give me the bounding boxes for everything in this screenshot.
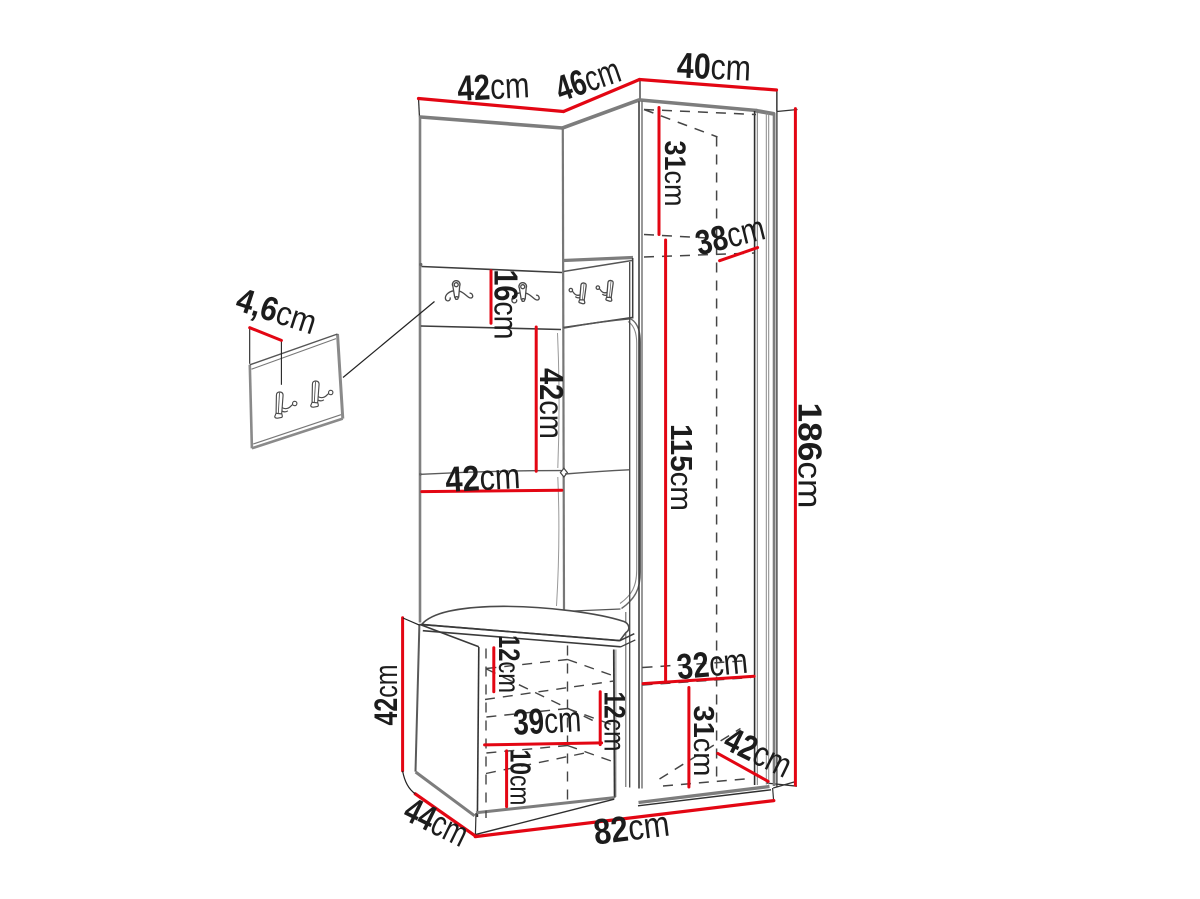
svg-text:31cm: 31cm — [687, 706, 719, 777]
svg-text:40cm: 40cm — [676, 44, 752, 88]
svg-text:39cm: 39cm — [512, 698, 582, 743]
svg-text:42cm: 42cm — [533, 368, 570, 439]
svg-text:42cm: 42cm — [444, 455, 521, 500]
svg-text:115cm: 115cm — [664, 424, 699, 511]
svg-text:31cm: 31cm — [658, 141, 691, 207]
svg-text:32cm: 32cm — [675, 640, 750, 688]
svg-text:42cm: 42cm — [368, 665, 404, 726]
svg-text:12cm: 12cm — [598, 692, 631, 752]
svg-text:42cm: 42cm — [456, 64, 530, 109]
svg-text:16cm: 16cm — [488, 270, 525, 340]
svg-text:10cm: 10cm — [504, 750, 536, 806]
svg-text:186cm: 186cm — [792, 403, 829, 509]
svg-text:12cm: 12cm — [492, 635, 525, 693]
